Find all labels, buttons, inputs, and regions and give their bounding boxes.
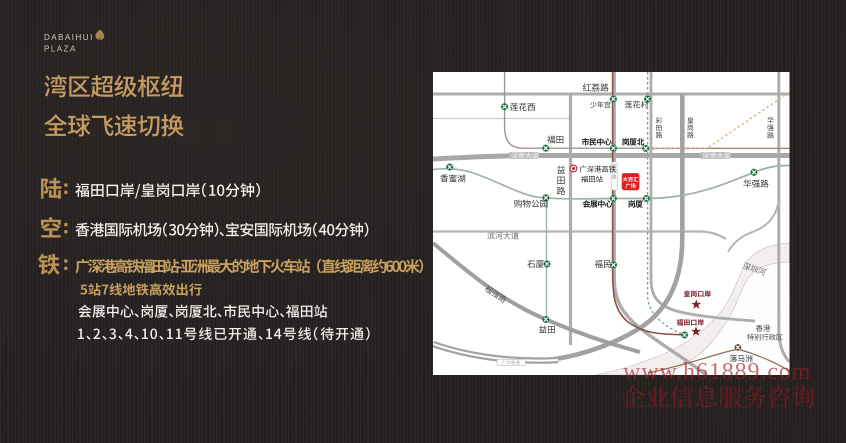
svg-text:www.h61889.com: www.h61889.com — [623, 359, 811, 385]
svg-text:DABAIHUI: DABAIHUI — [44, 33, 94, 42]
svg-text:PLAZA: PLAZA — [44, 44, 77, 53]
